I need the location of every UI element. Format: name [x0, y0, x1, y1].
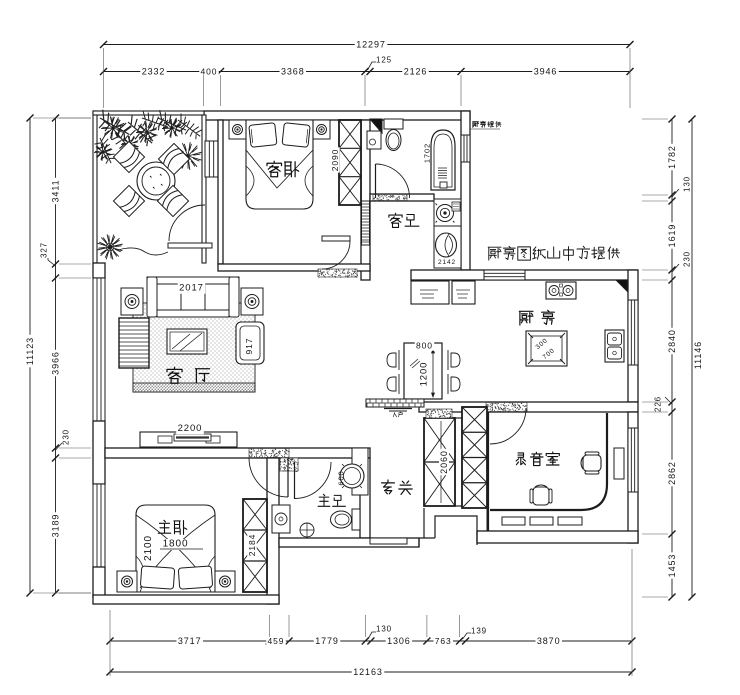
svg-text:1702: 1702 [423, 143, 432, 163]
svg-text:2862: 2862 [667, 461, 677, 485]
svg-text:12163: 12163 [353, 667, 383, 677]
svg-text:800: 800 [416, 341, 433, 351]
svg-text:400: 400 [201, 67, 218, 77]
svg-text:2200: 2200 [178, 423, 203, 434]
svg-text:1619: 1619 [667, 224, 677, 248]
svg-text:3411: 3411 [51, 180, 61, 203]
svg-text:2090: 2090 [330, 149, 340, 172]
svg-text:139: 139 [471, 627, 487, 636]
svg-text:327: 327 [40, 242, 49, 258]
svg-text:11123: 11123 [25, 337, 35, 365]
svg-text:917: 917 [244, 338, 254, 355]
svg-text:1779: 1779 [315, 636, 339, 646]
svg-text:2332: 2332 [142, 67, 166, 77]
svg-text:3870: 3870 [537, 636, 561, 646]
svg-text:600: 600 [337, 470, 346, 485]
svg-text:1200: 1200 [419, 362, 430, 387]
svg-text:230: 230 [683, 251, 692, 267]
svg-text:3368: 3368 [281, 67, 305, 77]
svg-text:125: 125 [376, 56, 392, 65]
svg-text:2840: 2840 [667, 329, 677, 353]
svg-text:230: 230 [62, 429, 71, 445]
svg-text:130: 130 [376, 625, 392, 634]
svg-text:1453: 1453 [667, 554, 677, 578]
svg-text:226: 226 [654, 396, 663, 412]
svg-text:12297: 12297 [356, 40, 386, 50]
svg-text:3189: 3189 [51, 514, 61, 538]
svg-text:3966: 3966 [51, 351, 61, 375]
svg-text:3946: 3946 [534, 67, 558, 77]
svg-text:3717: 3717 [178, 636, 202, 646]
svg-text:2060: 2060 [439, 450, 449, 474]
svg-text:1306: 1306 [387, 636, 411, 646]
svg-text:2184: 2184 [247, 534, 257, 557]
svg-text:130: 130 [683, 176, 692, 192]
svg-text:11146: 11146 [693, 341, 703, 369]
svg-text:2142: 2142 [438, 259, 456, 266]
svg-text:2100: 2100 [143, 535, 154, 561]
svg-text:2017: 2017 [179, 283, 204, 294]
svg-text:1800: 1800 [163, 539, 189, 550]
svg-text:1782: 1782 [667, 145, 677, 169]
svg-text:459: 459 [268, 636, 285, 646]
svg-text:763: 763 [435, 636, 452, 646]
svg-text:2126: 2126 [404, 67, 428, 77]
